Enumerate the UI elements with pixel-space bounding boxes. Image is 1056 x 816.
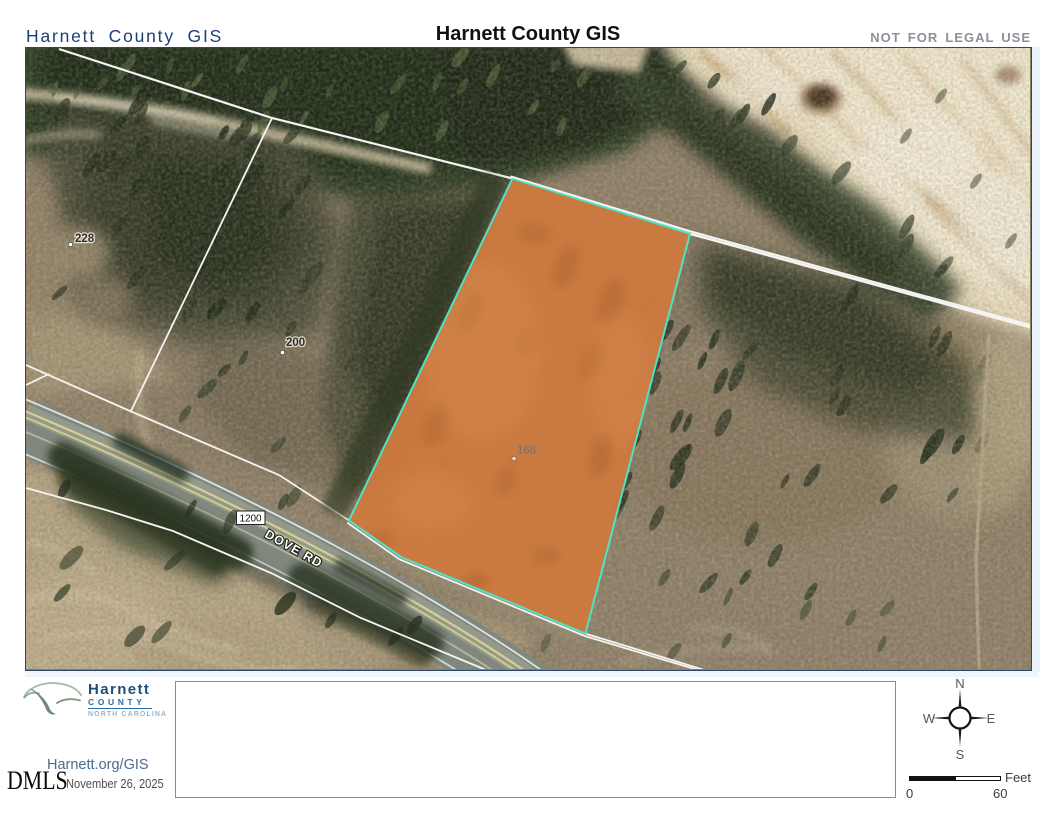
svg-text:W: W [923,711,936,726]
svg-text:168: 168 [517,445,537,457]
svg-text:E: E [987,711,996,726]
svg-text:200: 200 [286,337,305,349]
svg-text:N: N [955,678,964,691]
svg-text:S: S [956,747,965,762]
svg-text:228: 228 [75,233,95,245]
svg-text:1200: 1200 [240,514,262,525]
